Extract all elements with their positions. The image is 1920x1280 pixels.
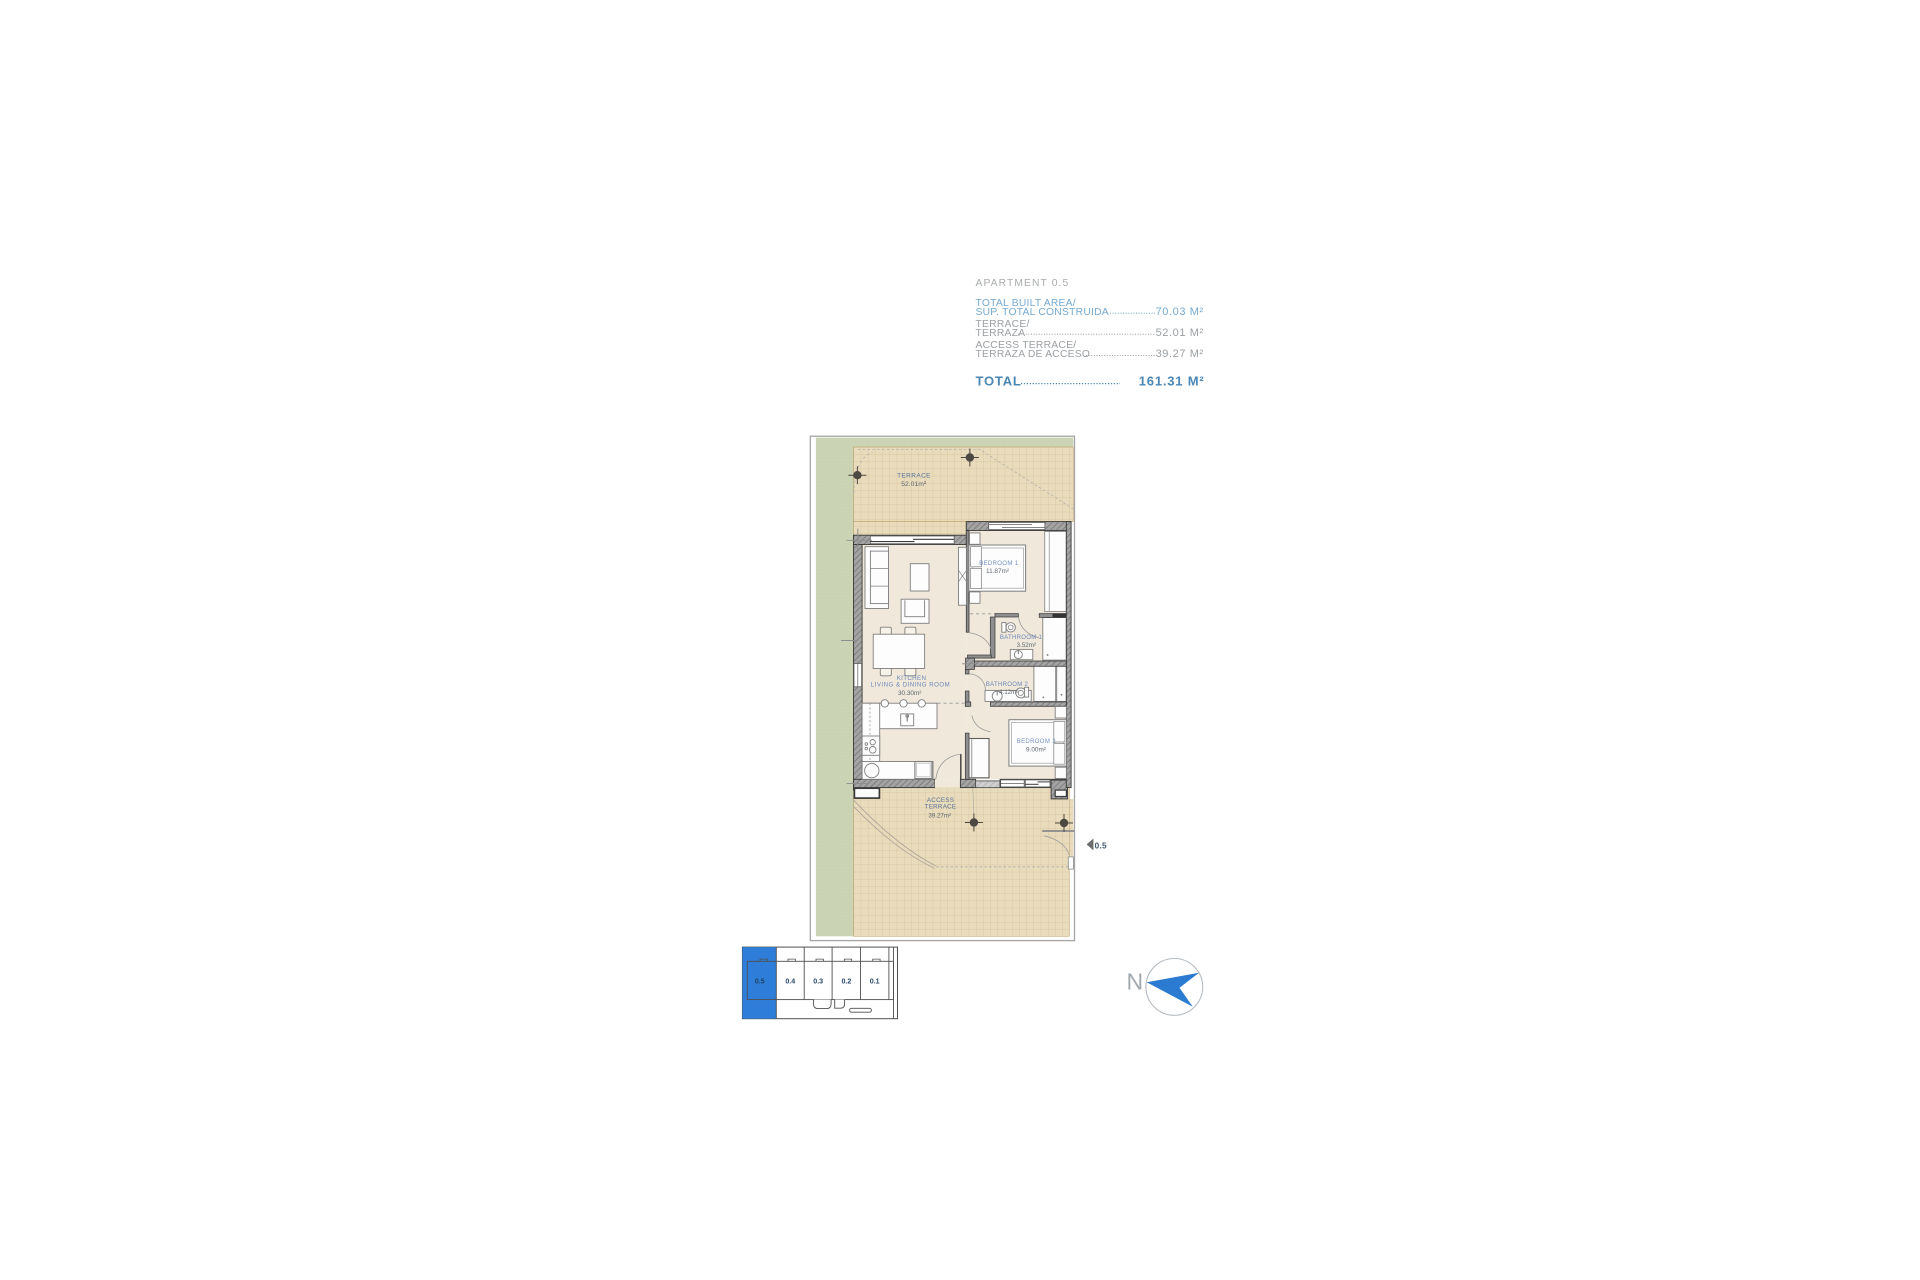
svg-text:4.12m²: 4.12m²	[999, 689, 1018, 696]
svg-text:11.87m²: 11.87m²	[986, 568, 1009, 575]
svg-text:TERRACE: TERRACE	[897, 473, 931, 480]
svg-text:39.27 M²: 39.27 M²	[1156, 348, 1204, 360]
svg-text:BATHROOM 2: BATHROOM 2	[986, 682, 1029, 688]
svg-text:APARTMENT 0.5: APARTMENT 0.5	[976, 278, 1070, 289]
svg-text:0.2: 0.2	[841, 978, 851, 986]
svg-text:52.01m²: 52.01m²	[901, 481, 927, 488]
svg-text:70.03 M²: 70.03 M²	[1156, 306, 1204, 318]
svg-text:9.00m²: 9.00m²	[1026, 747, 1046, 754]
svg-text:BATHROOM 1: BATHROOM 1	[1000, 635, 1043, 641]
svg-text:TOTAL: TOTAL	[976, 374, 1022, 389]
svg-text:TERRACE: TERRACE	[925, 803, 957, 810]
svg-text:0.4: 0.4	[785, 978, 795, 986]
svg-text:30.30m²: 30.30m²	[898, 690, 921, 697]
svg-text:BEDROOM 2: BEDROOM 2	[1017, 739, 1056, 745]
svg-text:52.01 M²: 52.01 M²	[1156, 327, 1204, 339]
svg-text:0.5: 0.5	[755, 978, 765, 986]
svg-text:3.52m²: 3.52m²	[1017, 642, 1036, 649]
svg-text:TERRAZA: TERRAZA	[976, 328, 1026, 339]
svg-text:0.5: 0.5	[1095, 841, 1107, 850]
svg-text:161.31 M²: 161.31 M²	[1139, 374, 1205, 389]
svg-text:N: N	[1127, 969, 1144, 995]
svg-text:39.27m²: 39.27m²	[928, 813, 951, 820]
svg-text:0.3: 0.3	[813, 978, 823, 986]
svg-text:0.1: 0.1	[870, 978, 880, 986]
svg-text:TERRAZA DE ACCESO: TERRAZA DE ACCESO	[976, 349, 1091, 360]
svg-text:BEDROOM 1: BEDROOM 1	[979, 561, 1018, 567]
svg-text:LIVING & DINING ROOM: LIVING & DINING ROOM	[871, 682, 950, 689]
svg-text:SUP. TOTAL CONSTRUIDA: SUP. TOTAL CONSTRUIDA	[976, 307, 1109, 318]
